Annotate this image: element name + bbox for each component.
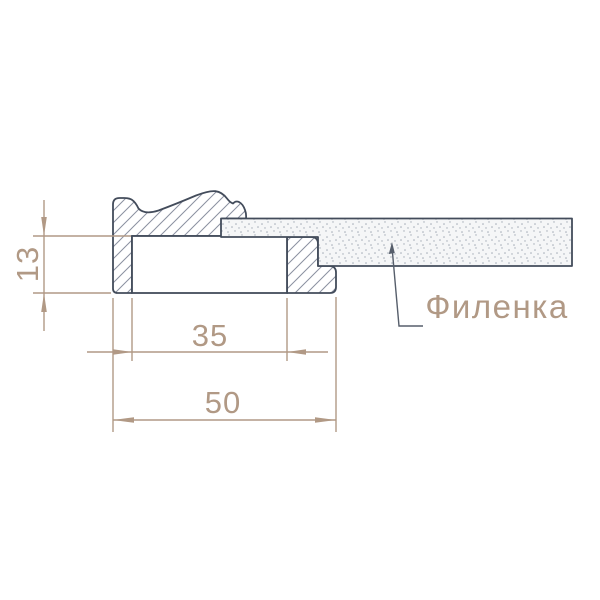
dimension-35-label: 35 [192, 318, 228, 353]
panel-callout-label: Филенка [425, 288, 568, 325]
molding-cross-section-drawing: 13 35 50 Филенка [0, 0, 600, 600]
dimension-50-label: 50 [205, 385, 241, 420]
dimension-13-label: 13 [10, 246, 45, 282]
technical-drawing-canvas: 13 35 50 Филенка [0, 0, 600, 600]
rabbet-opening [132, 236, 287, 293]
